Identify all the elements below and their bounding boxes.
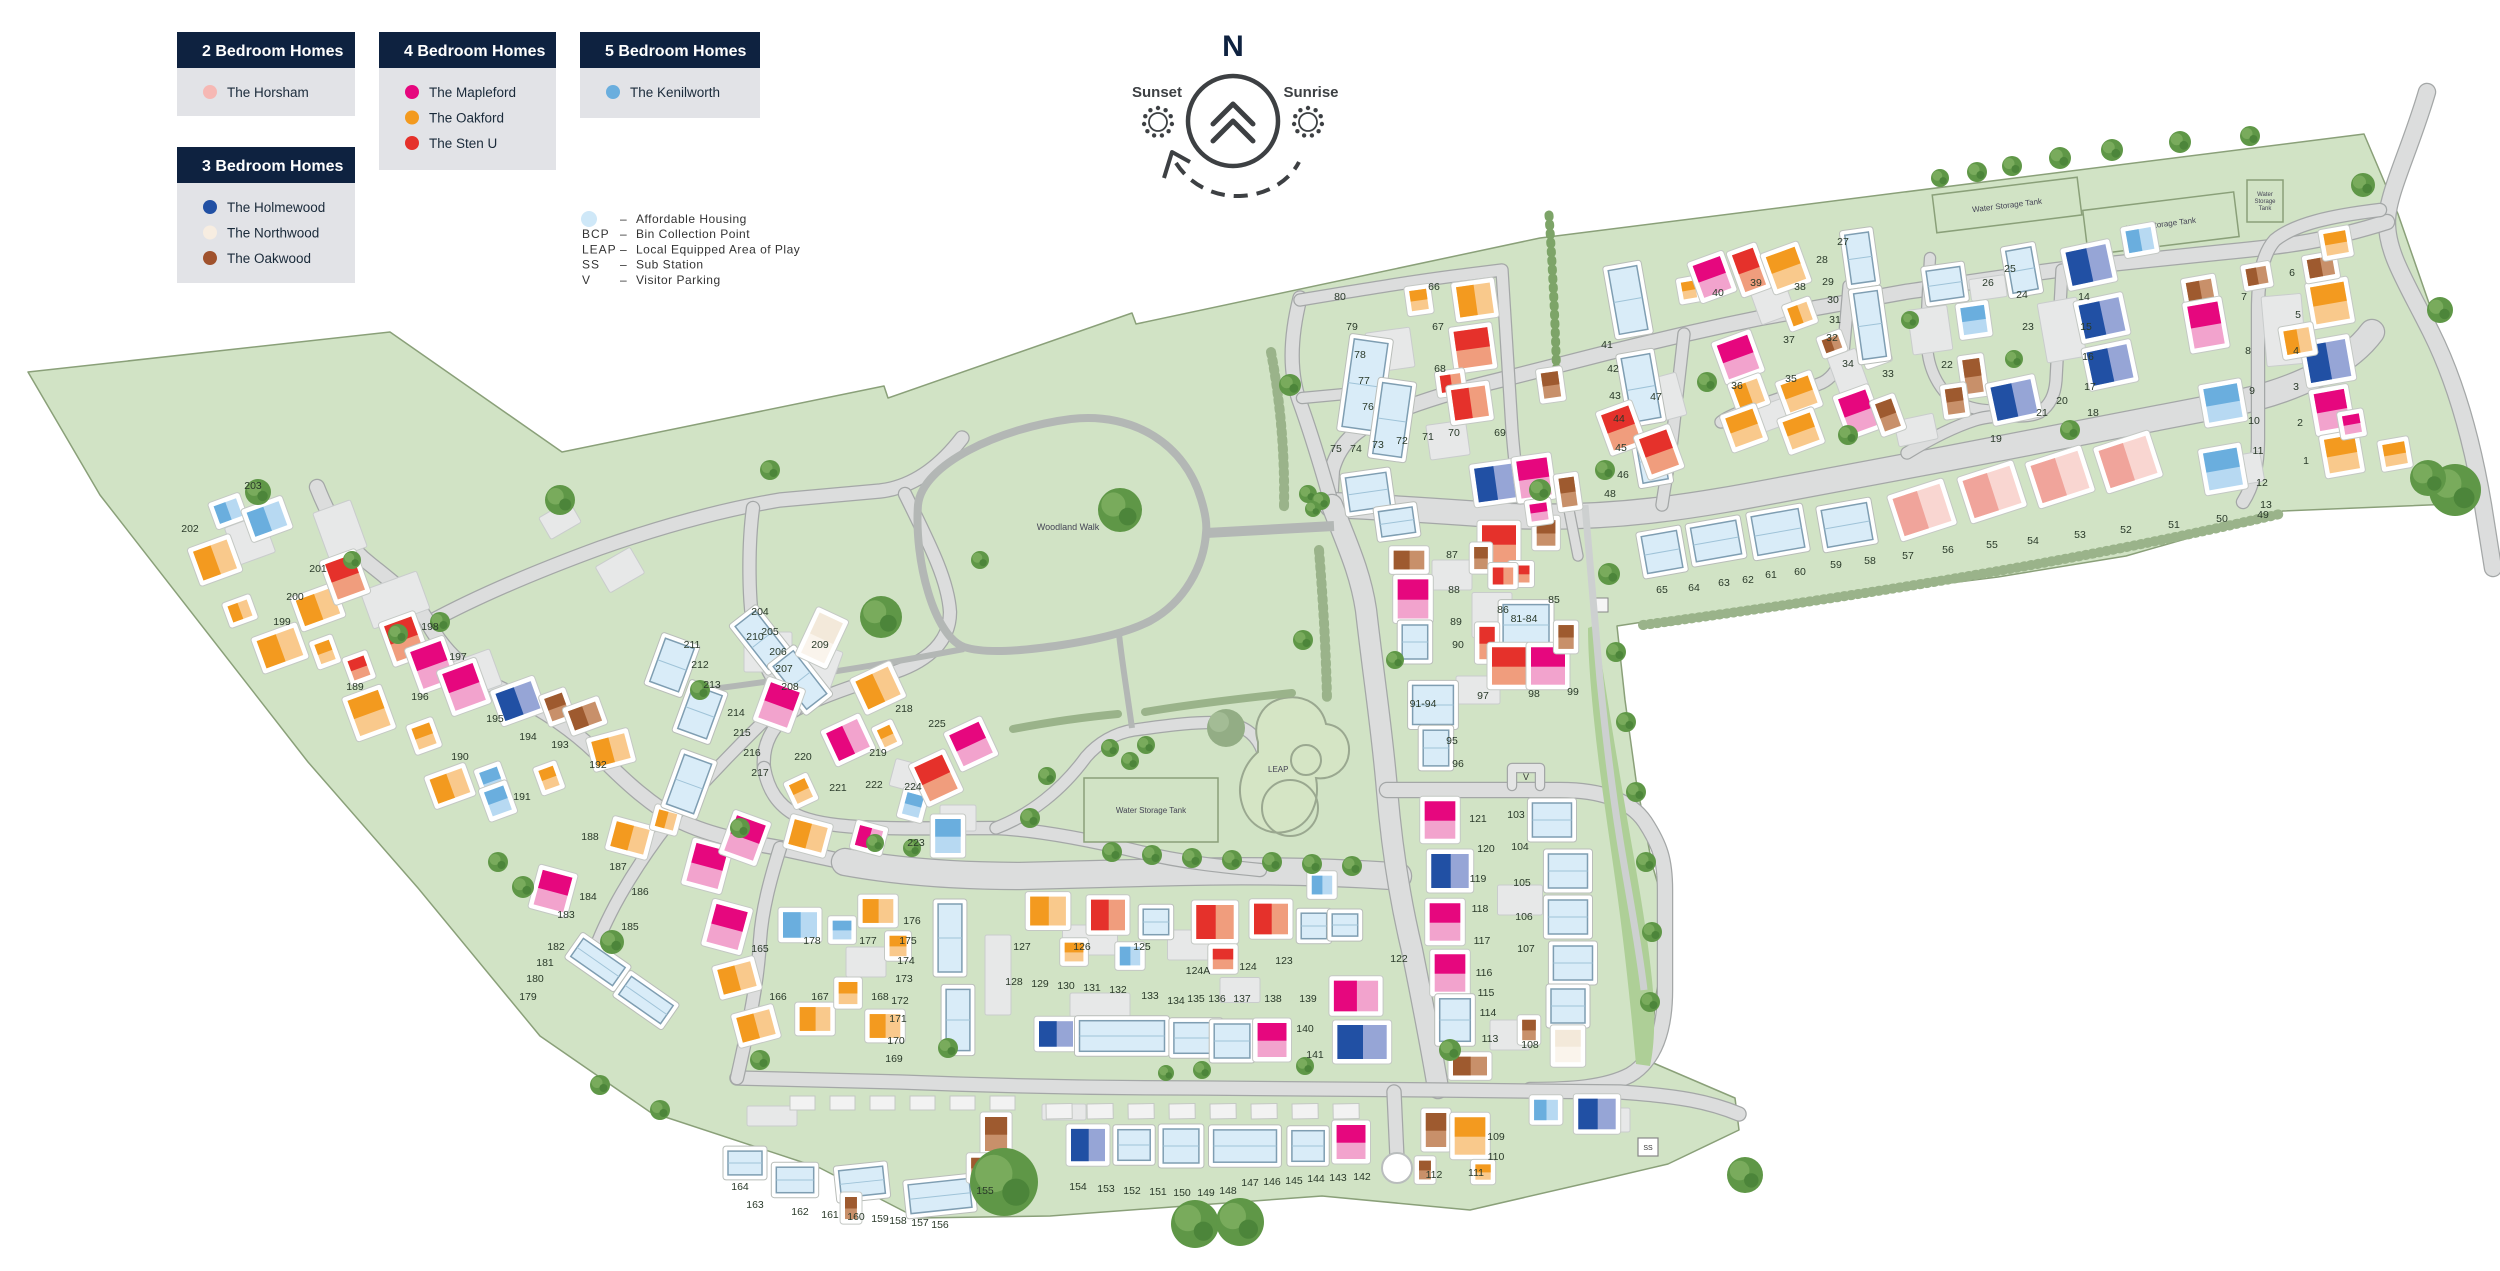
svg-text:Woodland Walk: Woodland Walk <box>1037 522 1100 532</box>
svg-text:127: 127 <box>1013 941 1031 953</box>
svg-text:208: 208 <box>781 681 799 693</box>
svg-text:181: 181 <box>536 957 554 969</box>
svg-text:22: 22 <box>1941 359 1953 371</box>
svg-text:32: 32 <box>1826 332 1838 344</box>
svg-text:38: 38 <box>1794 281 1806 293</box>
svg-text:119: 119 <box>1470 873 1487 885</box>
svg-text:185: 185 <box>621 921 639 933</box>
svg-text:–: – <box>620 258 627 272</box>
svg-text:59: 59 <box>1830 559 1842 571</box>
svg-text:60: 60 <box>1794 566 1806 578</box>
svg-text:176: 176 <box>903 915 921 927</box>
svg-text:168: 168 <box>871 991 889 1003</box>
svg-text:197: 197 <box>449 651 467 663</box>
svg-text:111: 111 <box>1468 1167 1484 1179</box>
svg-text:157: 157 <box>911 1217 929 1229</box>
svg-text:Water: Water <box>2257 192 2273 198</box>
svg-text:23: 23 <box>2022 321 2034 333</box>
svg-text:97: 97 <box>1477 690 1489 702</box>
svg-text:26: 26 <box>1982 277 1994 289</box>
svg-text:122: 122 <box>1390 953 1408 965</box>
svg-text:68: 68 <box>1434 363 1446 375</box>
svg-text:191: 191 <box>513 791 531 803</box>
svg-text:33: 33 <box>1882 368 1894 380</box>
svg-text:40: 40 <box>1712 287 1724 299</box>
svg-text:138: 138 <box>1264 993 1282 1005</box>
svg-text:25: 25 <box>2004 263 2016 275</box>
svg-text:134: 134 <box>1167 995 1185 1007</box>
svg-text:76: 76 <box>1362 401 1374 413</box>
svg-text:67: 67 <box>1432 321 1444 333</box>
svg-text:89: 89 <box>1450 616 1462 628</box>
svg-text:80: 80 <box>1334 291 1346 303</box>
svg-text:85: 85 <box>1548 594 1560 606</box>
svg-text:V: V <box>582 273 591 287</box>
svg-text:167: 167 <box>811 991 829 1003</box>
svg-text:3: 3 <box>2293 381 2299 393</box>
svg-text:133: 133 <box>1141 990 1159 1002</box>
svg-text:174: 174 <box>897 955 915 967</box>
svg-text:160: 160 <box>847 1211 865 1223</box>
svg-text:173: 173 <box>895 973 913 985</box>
svg-text:196: 196 <box>411 691 429 703</box>
svg-text:165: 165 <box>751 943 769 955</box>
svg-text:132: 132 <box>1109 984 1127 996</box>
svg-text:58: 58 <box>1864 555 1876 567</box>
svg-text:107: 107 <box>1517 943 1535 955</box>
svg-text:116: 116 <box>1476 967 1493 979</box>
svg-text:220: 220 <box>794 751 812 763</box>
svg-text:215: 215 <box>733 727 751 739</box>
svg-text:The Oakford: The Oakford <box>429 111 504 126</box>
svg-text:54: 54 <box>2027 535 2039 547</box>
svg-text:162: 162 <box>791 1206 809 1218</box>
svg-text:186: 186 <box>631 886 649 898</box>
svg-text:47: 47 <box>1650 391 1662 403</box>
svg-text:126: 126 <box>1073 941 1091 953</box>
svg-text:61: 61 <box>1765 569 1777 581</box>
svg-text:66: 66 <box>1428 281 1440 293</box>
svg-text:156: 156 <box>931 1219 949 1231</box>
svg-text:203: 203 <box>244 480 262 492</box>
svg-text:The Horsham: The Horsham <box>227 85 309 100</box>
svg-text:35: 35 <box>1785 373 1797 385</box>
svg-text:17: 17 <box>2084 381 2096 393</box>
svg-text:BCP: BCP <box>582 227 610 241</box>
svg-text:41: 41 <box>1601 339 1613 351</box>
svg-text:90: 90 <box>1452 639 1464 651</box>
svg-text:21: 21 <box>2036 407 2048 419</box>
svg-text:152: 152 <box>1123 1185 1141 1197</box>
svg-text:69: 69 <box>1494 427 1506 439</box>
svg-text:172: 172 <box>891 995 909 1007</box>
svg-text:The Kenilworth: The Kenilworth <box>630 85 720 100</box>
svg-text:217: 217 <box>751 767 769 779</box>
svg-text:201: 201 <box>309 563 327 575</box>
svg-text:36: 36 <box>1731 380 1743 392</box>
svg-text:98: 98 <box>1528 688 1540 700</box>
svg-text:16: 16 <box>2082 351 2094 363</box>
svg-text:15: 15 <box>2080 321 2092 333</box>
svg-text:118: 118 <box>1472 903 1489 915</box>
svg-text:37: 37 <box>1783 334 1795 346</box>
svg-text:81-84: 81-84 <box>1511 613 1538 625</box>
svg-text:109: 109 <box>1487 1131 1505 1143</box>
svg-text:222: 222 <box>865 779 883 791</box>
svg-text:148: 148 <box>1219 1185 1237 1197</box>
svg-text:163: 163 <box>746 1199 764 1211</box>
svg-text:46: 46 <box>1617 469 1629 481</box>
svg-text:177: 177 <box>859 935 877 947</box>
svg-text:99: 99 <box>1567 686 1579 698</box>
svg-text:175: 175 <box>899 935 917 947</box>
svg-text:Water Storage Tank: Water Storage Tank <box>1116 806 1187 815</box>
svg-text:219: 219 <box>869 747 887 759</box>
svg-text:146: 146 <box>1263 1176 1281 1188</box>
svg-text:Sunrise: Sunrise <box>1283 84 1338 101</box>
svg-text:199: 199 <box>273 616 291 628</box>
svg-text:78: 78 <box>1354 349 1366 361</box>
svg-text:140: 140 <box>1296 1023 1314 1035</box>
svg-text:142: 142 <box>1353 1171 1371 1183</box>
svg-text:The Sten U: The Sten U <box>429 136 497 151</box>
svg-text:147: 147 <box>1241 1177 1259 1189</box>
svg-text:179: 179 <box>519 991 537 1003</box>
svg-text:19: 19 <box>1990 433 2002 445</box>
svg-text:3 Bedroom Homes: 3 Bedroom Homes <box>202 158 343 175</box>
svg-text:4: 4 <box>2293 345 2299 357</box>
svg-text:110: 110 <box>1488 1151 1505 1163</box>
svg-text:LEAP: LEAP <box>582 242 617 256</box>
svg-text:44: 44 <box>1613 413 1625 425</box>
svg-text:223: 223 <box>907 837 925 849</box>
svg-text:117: 117 <box>1474 935 1491 947</box>
svg-text:154: 154 <box>1069 1181 1087 1193</box>
svg-text:188: 188 <box>581 831 599 843</box>
svg-text:SS: SS <box>582 258 600 272</box>
svg-text:24: 24 <box>2016 289 2028 301</box>
svg-text:2: 2 <box>2297 417 2303 429</box>
svg-text:10: 10 <box>2248 415 2260 427</box>
svg-text:137: 137 <box>1233 993 1251 1005</box>
svg-text:55: 55 <box>1986 539 1998 551</box>
svg-text:57: 57 <box>1902 550 1914 562</box>
svg-text:205: 205 <box>761 626 779 638</box>
svg-text:129: 129 <box>1031 978 1049 990</box>
svg-text:104: 104 <box>1511 841 1529 853</box>
svg-text:141: 141 <box>1306 1049 1324 1061</box>
svg-text:200: 200 <box>286 591 304 603</box>
svg-text:221: 221 <box>829 782 847 794</box>
svg-text:29: 29 <box>1822 276 1834 288</box>
svg-text:96: 96 <box>1452 758 1464 770</box>
svg-text:145: 145 <box>1285 1175 1303 1187</box>
svg-text:161: 161 <box>821 1209 839 1221</box>
svg-text:210: 210 <box>746 631 764 643</box>
svg-text:34: 34 <box>1842 358 1854 370</box>
svg-text:18: 18 <box>2087 407 2099 419</box>
svg-text:–: – <box>620 273 627 287</box>
svg-text:–: – <box>620 227 627 241</box>
svg-text:LEAP: LEAP <box>1268 765 1288 774</box>
svg-text:12: 12 <box>2256 477 2268 489</box>
svg-text:Sunset: Sunset <box>1132 84 1182 101</box>
svg-text:8: 8 <box>2245 345 2251 357</box>
svg-text:62: 62 <box>1742 574 1754 586</box>
svg-text:Affordable Housing: Affordable Housing <box>636 212 747 226</box>
svg-text:123: 123 <box>1275 955 1293 967</box>
svg-text:The Holmewood: The Holmewood <box>227 200 325 215</box>
svg-text:159: 159 <box>871 1213 889 1225</box>
svg-text:7: 7 <box>2241 291 2247 303</box>
svg-text:192: 192 <box>589 759 607 771</box>
svg-text:144: 144 <box>1307 1173 1325 1185</box>
svg-text:204: 204 <box>751 606 769 618</box>
svg-text:39: 39 <box>1750 277 1762 289</box>
svg-text:225: 225 <box>928 718 946 730</box>
svg-text:20: 20 <box>2056 395 2068 407</box>
svg-text:The Mapleford: The Mapleford <box>429 85 516 100</box>
svg-text:5: 5 <box>2295 309 2301 321</box>
svg-text:202: 202 <box>181 523 199 535</box>
svg-text:189: 189 <box>346 681 364 693</box>
svg-text:65: 65 <box>1656 584 1668 596</box>
svg-text:121: 121 <box>1469 813 1487 825</box>
svg-text:182: 182 <box>547 941 565 953</box>
svg-text:77: 77 <box>1358 375 1370 387</box>
svg-text:198: 198 <box>421 621 439 633</box>
svg-text:193: 193 <box>551 739 569 751</box>
svg-text:187: 187 <box>609 861 627 873</box>
svg-text:170: 170 <box>887 1035 905 1047</box>
svg-text:50: 50 <box>2216 513 2228 525</box>
svg-text:Local Equipped Area of Play: Local Equipped Area of Play <box>636 242 800 256</box>
svg-text:164: 164 <box>731 1181 749 1193</box>
svg-text:103: 103 <box>1507 809 1525 821</box>
svg-text:Visitor Parking: Visitor Parking <box>636 273 721 287</box>
svg-text:2 Bedroom Homes: 2 Bedroom Homes <box>202 43 343 60</box>
svg-text:52: 52 <box>2120 524 2132 536</box>
svg-text:70: 70 <box>1448 427 1460 439</box>
svg-text:149: 149 <box>1197 1187 1215 1199</box>
svg-text:224: 224 <box>904 781 922 793</box>
svg-text:130: 130 <box>1057 980 1075 992</box>
svg-text:158: 158 <box>889 1215 907 1227</box>
svg-text:112: 112 <box>1426 1169 1443 1181</box>
svg-text:150: 150 <box>1173 1187 1191 1199</box>
svg-text:28: 28 <box>1816 254 1828 266</box>
svg-text:91-94: 91-94 <box>1410 698 1437 710</box>
svg-text:Sub Station: Sub Station <box>636 258 704 272</box>
svg-text:171: 171 <box>889 1013 907 1025</box>
svg-text:1: 1 <box>2303 455 2309 467</box>
svg-text:V: V <box>1523 772 1529 782</box>
svg-text:155: 155 <box>976 1185 994 1197</box>
svg-text:131: 131 <box>1083 982 1101 994</box>
svg-text:105: 105 <box>1513 877 1531 889</box>
svg-text:113: 113 <box>1482 1033 1499 1045</box>
svg-text:The Northwood: The Northwood <box>227 226 319 241</box>
svg-text:9: 9 <box>2249 385 2255 397</box>
svg-text:106: 106 <box>1515 911 1533 923</box>
svg-text:194: 194 <box>519 731 537 743</box>
svg-text:214: 214 <box>727 707 745 719</box>
svg-text:153: 153 <box>1097 1183 1115 1195</box>
svg-text:212: 212 <box>691 659 709 671</box>
svg-text:190: 190 <box>451 751 469 763</box>
svg-text:72: 72 <box>1396 435 1408 447</box>
svg-text:Storage: Storage <box>2254 199 2276 205</box>
svg-text:4 Bedroom Homes: 4 Bedroom Homes <box>404 43 545 60</box>
svg-text:48: 48 <box>1604 488 1616 500</box>
svg-text:Bin Collection Point: Bin Collection Point <box>636 227 750 241</box>
svg-text:27: 27 <box>1837 236 1849 248</box>
svg-text:79: 79 <box>1346 321 1358 333</box>
svg-text:136: 136 <box>1208 993 1226 1005</box>
svg-text:206: 206 <box>769 646 787 658</box>
svg-text:42: 42 <box>1607 363 1619 375</box>
svg-text:108: 108 <box>1521 1039 1539 1051</box>
svg-text:183: 183 <box>557 909 575 921</box>
svg-text:64: 64 <box>1688 582 1700 594</box>
svg-text:5 Bedroom Homes: 5 Bedroom Homes <box>605 43 746 60</box>
svg-text:95: 95 <box>1446 735 1458 747</box>
svg-text:SS: SS <box>1643 1145 1653 1152</box>
svg-text:88: 88 <box>1448 584 1460 596</box>
svg-text:86: 86 <box>1497 604 1509 616</box>
svg-text:207: 207 <box>775 663 793 675</box>
svg-text:195: 195 <box>486 713 504 725</box>
svg-text:Tank: Tank <box>2259 206 2273 212</box>
svg-text:139: 139 <box>1299 993 1317 1005</box>
svg-text:125: 125 <box>1133 941 1151 953</box>
svg-text:115: 115 <box>1478 987 1495 999</box>
svg-text:73: 73 <box>1372 439 1384 451</box>
svg-text:216: 216 <box>743 747 761 759</box>
svg-text:218: 218 <box>895 703 913 715</box>
svg-text:6: 6 <box>2289 267 2295 279</box>
svg-text:63: 63 <box>1718 577 1730 589</box>
svg-text:180: 180 <box>526 973 544 985</box>
svg-text:49: 49 <box>2257 509 2269 521</box>
svg-text:87: 87 <box>1446 549 1458 561</box>
svg-text:128: 128 <box>1005 976 1023 988</box>
svg-text:–: – <box>620 242 627 256</box>
svg-text:43: 43 <box>1609 390 1621 402</box>
svg-text:135: 135 <box>1187 993 1205 1005</box>
svg-text:124: 124 <box>1239 961 1257 973</box>
svg-text:53: 53 <box>2074 529 2086 541</box>
svg-text:184: 184 <box>579 891 597 903</box>
svg-text:178: 178 <box>803 935 821 947</box>
svg-text:120: 120 <box>1477 843 1495 855</box>
svg-text:124A: 124A <box>1186 965 1211 977</box>
svg-text:151: 151 <box>1149 1186 1167 1198</box>
svg-text:51: 51 <box>2168 519 2180 531</box>
svg-text:74: 74 <box>1350 443 1362 455</box>
svg-text:71: 71 <box>1422 431 1434 443</box>
svg-text:N: N <box>1222 30 1244 63</box>
svg-text:211: 211 <box>684 639 701 651</box>
svg-text:169: 169 <box>885 1053 903 1065</box>
svg-text:114: 114 <box>1480 1007 1497 1019</box>
svg-text:30: 30 <box>1827 294 1839 306</box>
svg-text:166: 166 <box>769 991 787 1003</box>
svg-text:14: 14 <box>2078 291 2090 303</box>
svg-text:75: 75 <box>1330 443 1342 455</box>
svg-text:143: 143 <box>1329 1172 1347 1184</box>
svg-text:213: 213 <box>703 679 721 691</box>
svg-text:11: 11 <box>2253 445 2264 457</box>
svg-text:45: 45 <box>1615 442 1627 454</box>
svg-text:–: – <box>620 212 627 226</box>
svg-text:209: 209 <box>811 639 829 651</box>
svg-text:31: 31 <box>1829 314 1841 326</box>
svg-text:56: 56 <box>1942 544 1954 556</box>
svg-text:The Oakwood: The Oakwood <box>227 251 311 266</box>
